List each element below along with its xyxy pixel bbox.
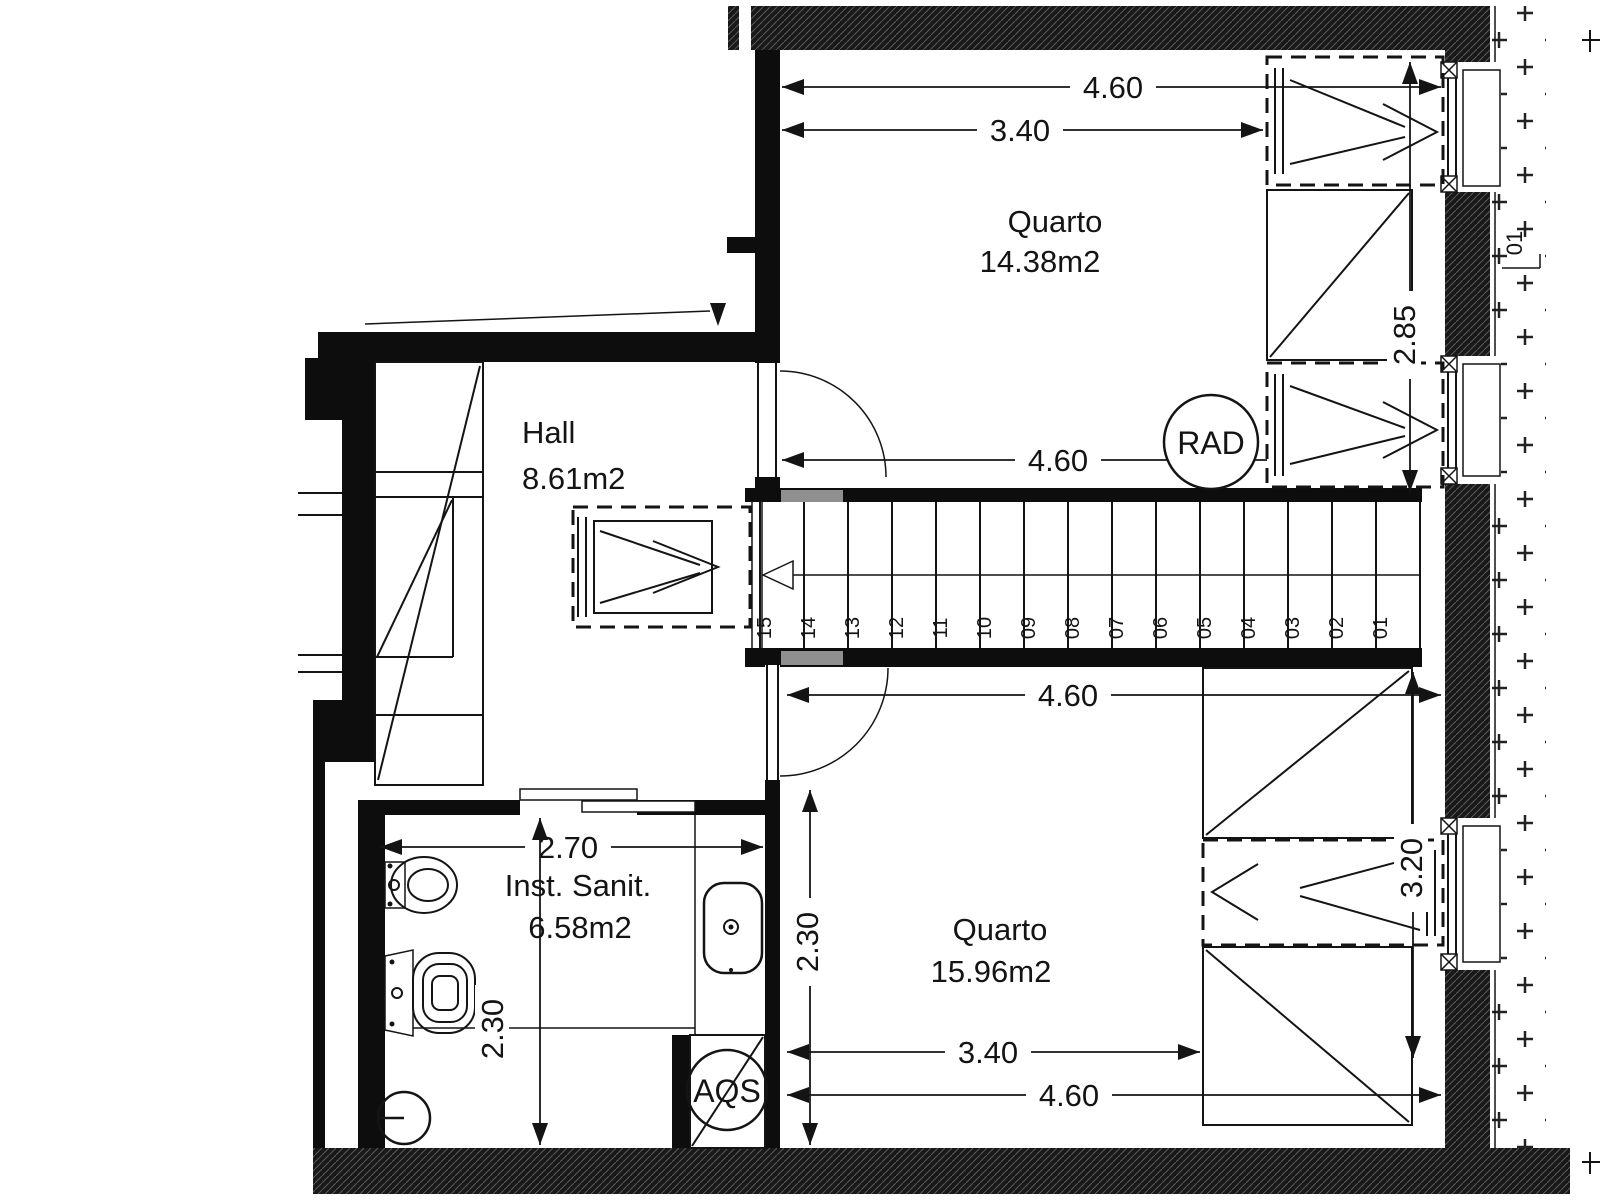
top-exterior-wall [728, 6, 1490, 50]
bottom-exterior-wall [313, 1148, 1570, 1194]
step-number: 08 [1062, 617, 1084, 639]
room-name-hall: Hall [522, 415, 575, 450]
wardrobe-bottom-room-upper [1203, 668, 1412, 838]
door-bottom-quarto [765, 665, 888, 780]
washbasin [704, 883, 762, 973]
step-number: 01 [1370, 617, 1392, 639]
interior-walls [305, 50, 1422, 1148]
staircase: 15 14 13 12 11 10 09 08 07 06 05 04 03 0… [752, 502, 1420, 648]
step-number: 14 [798, 617, 820, 639]
window-middle [1441, 356, 1501, 484]
step-number: 10 [974, 617, 996, 639]
room-area-hall: 8.61m2 [522, 461, 625, 496]
wardrobe-top-room-lower [1267, 363, 1443, 487]
wardrobe-bottom-room-lower [1203, 947, 1412, 1125]
wardrobe-top-room-upper [1267, 57, 1443, 185]
step-number: 06 [1150, 617, 1172, 639]
floor-plan-page: 15 14 13 12 11 10 09 08 07 06 05 04 03 0… [0, 0, 1600, 1200]
terrain-plus-marks [1492, 6, 1600, 1174]
reference-leader-line [365, 311, 710, 324]
water-heater-aqs: AQS [687, 1035, 767, 1148]
step-number: 02 [1326, 617, 1348, 639]
dim-bottom-wardrobe-height: 3.20 [1394, 838, 1429, 898]
dimensions: 4.60 3.40 4.60 2.85 4.60 2.30 3.40 [380, 62, 1441, 1145]
door-bathroom-sliding [520, 789, 695, 812]
dim-top-inner-width: 3.40 [990, 113, 1050, 148]
exterior-level-label: 01 [1502, 231, 1527, 255]
dim-bottom-lower-width: 4.60 [1039, 1078, 1099, 1113]
room-area-quarto-top: 14.38m2 [980, 244, 1101, 279]
radiator-marker: RAD [1164, 395, 1258, 489]
room-name-quarto-bottom: Quarto [953, 912, 1048, 947]
step-number: 03 [1282, 617, 1304, 639]
room-name-inst-sanit: Inst. Sanit. [505, 868, 651, 903]
step-number: 13 [842, 617, 864, 639]
step-number: 05 [1194, 617, 1216, 639]
stair-step-numbers: 15 14 13 12 11 10 09 08 07 06 05 04 03 0… [754, 617, 1392, 639]
window-bottom [1441, 818, 1501, 970]
dim-top-mid-width: 4.60 [1028, 443, 1088, 478]
room-name-quarto-top: Quarto [1008, 204, 1103, 239]
dim-top-total-width: 4.60 [1083, 70, 1143, 105]
toilet [385, 950, 475, 1036]
wardrobe-hall [573, 507, 750, 627]
stair-direction-arrow-icon [763, 561, 793, 589]
dim-bottom-total-width: 4.60 [1038, 678, 1098, 713]
step-number: 11 [930, 618, 952, 639]
step-number: 12 [886, 617, 908, 639]
dim-top-wardrobe-height: 2.85 [1387, 305, 1422, 365]
step-number: 15 [754, 617, 776, 639]
room-area-quarto-bottom: 15.96m2 [931, 954, 1052, 989]
window-top [1441, 62, 1501, 192]
bidet [385, 857, 457, 913]
step-number: 04 [1238, 617, 1260, 639]
step-number: 09 [1018, 617, 1040, 639]
dim-bottom-partial-height: 2.30 [790, 912, 825, 972]
dim-bath-width: 2.70 [538, 830, 598, 865]
water-heater-label: AQS [693, 1073, 761, 1109]
dim-bath-height: 2.30 [475, 999, 510, 1059]
floor-plan-svg: 15 14 13 12 11 10 09 08 07 06 05 04 03 0… [0, 0, 1600, 1200]
dim-bottom-inner-width: 3.40 [958, 1035, 1018, 1070]
shower-tap-icon [378, 1092, 430, 1144]
step-number: 07 [1106, 617, 1128, 639]
room-area-inst-sanit: 6.58m2 [528, 910, 631, 945]
radiator-label: RAD [1177, 425, 1245, 461]
leader-arrow-icon [710, 303, 726, 326]
